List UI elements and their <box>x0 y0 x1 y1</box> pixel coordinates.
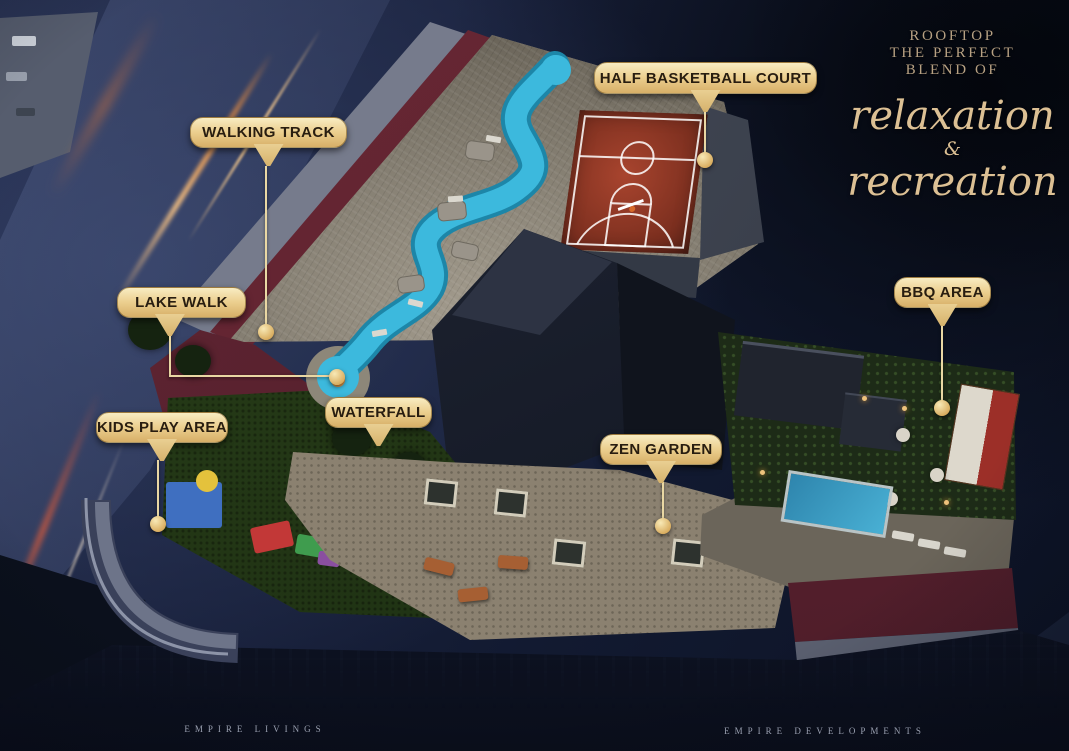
headline-ampersand: & <box>845 139 1060 159</box>
callout-half-basketball-court: HALF BASKETBALL COURT <box>594 62 817 94</box>
callout-label: ZEN GARDEN <box>609 441 712 458</box>
callout-walking-track: WALKING TRACK <box>190 117 347 148</box>
callout-pill: BBQ AREA <box>894 277 991 308</box>
callout-lake-walk: LAKE WALK <box>117 287 246 318</box>
headline-script-recreation: recreation <box>845 159 1060 205</box>
callout-pill: KIDS PLAY AREA <box>96 412 228 443</box>
headline-kicker-line: THE PERFECT <box>845 45 1060 62</box>
leader-dot-lake-walk <box>329 369 345 385</box>
leader-dot-zen-garden <box>655 518 671 534</box>
callout-label: KIDS PLAY AREA <box>97 419 227 436</box>
leader-dot-bbq-area <box>934 400 950 416</box>
callout-waterfall: WATERFALL <box>325 397 432 428</box>
callout-zen-garden: ZEN GARDEN <box>600 434 722 465</box>
callout-pill: LAKE WALK <box>117 287 246 318</box>
leader-bbq-area <box>941 326 943 402</box>
callout-label: HALF BASKETBALL COURT <box>600 70 811 87</box>
callout-pill: WALKING TRACK <box>190 117 347 148</box>
callout-bbq-area: BBQ AREA <box>894 277 991 308</box>
leader-half-basketball-court <box>704 112 706 154</box>
leader-walking-track <box>265 166 267 332</box>
leader-lake-walk <box>169 336 171 377</box>
callout-pill: HALF BASKETBALL COURT <box>594 62 817 94</box>
brand-empire-livings: EMPIRE LIVINGS <box>150 724 360 734</box>
callout-kids-play-area: KIDS PLAY AREA <box>96 412 228 443</box>
leader-dot-walking-track <box>258 324 274 340</box>
headline-kicker-line: ROOFTOP <box>845 28 1060 45</box>
rooftop-aerial-render: WALKING TRACK HALF BASKETBALL COURT LAKE… <box>0 0 1069 751</box>
leader-dot-kids-play-area <box>150 516 166 532</box>
callout-label: WALKING TRACK <box>202 124 335 141</box>
leader-kids-play-area <box>157 460 159 518</box>
headline-kicker-line: BLEND OF <box>845 62 1060 79</box>
callout-label: WATERFALL <box>331 404 425 421</box>
leader-lake-walk <box>169 375 335 377</box>
callout-label: BBQ AREA <box>901 284 984 301</box>
callout-pill: ZEN GARDEN <box>600 434 722 465</box>
headline-block: ROOFTOP THE PERFECT BLEND OF relaxation … <box>845 28 1060 205</box>
brand-empire-developments: EMPIRE DEVELOPMENTS <box>700 726 950 736</box>
callout-label: LAKE WALK <box>135 294 228 311</box>
callout-pill: WATERFALL <box>325 397 432 428</box>
headline-script-relaxation: relaxation <box>845 93 1060 139</box>
leader-dot-half-basketball-court <box>697 152 713 168</box>
leader-zen-garden <box>662 482 664 520</box>
